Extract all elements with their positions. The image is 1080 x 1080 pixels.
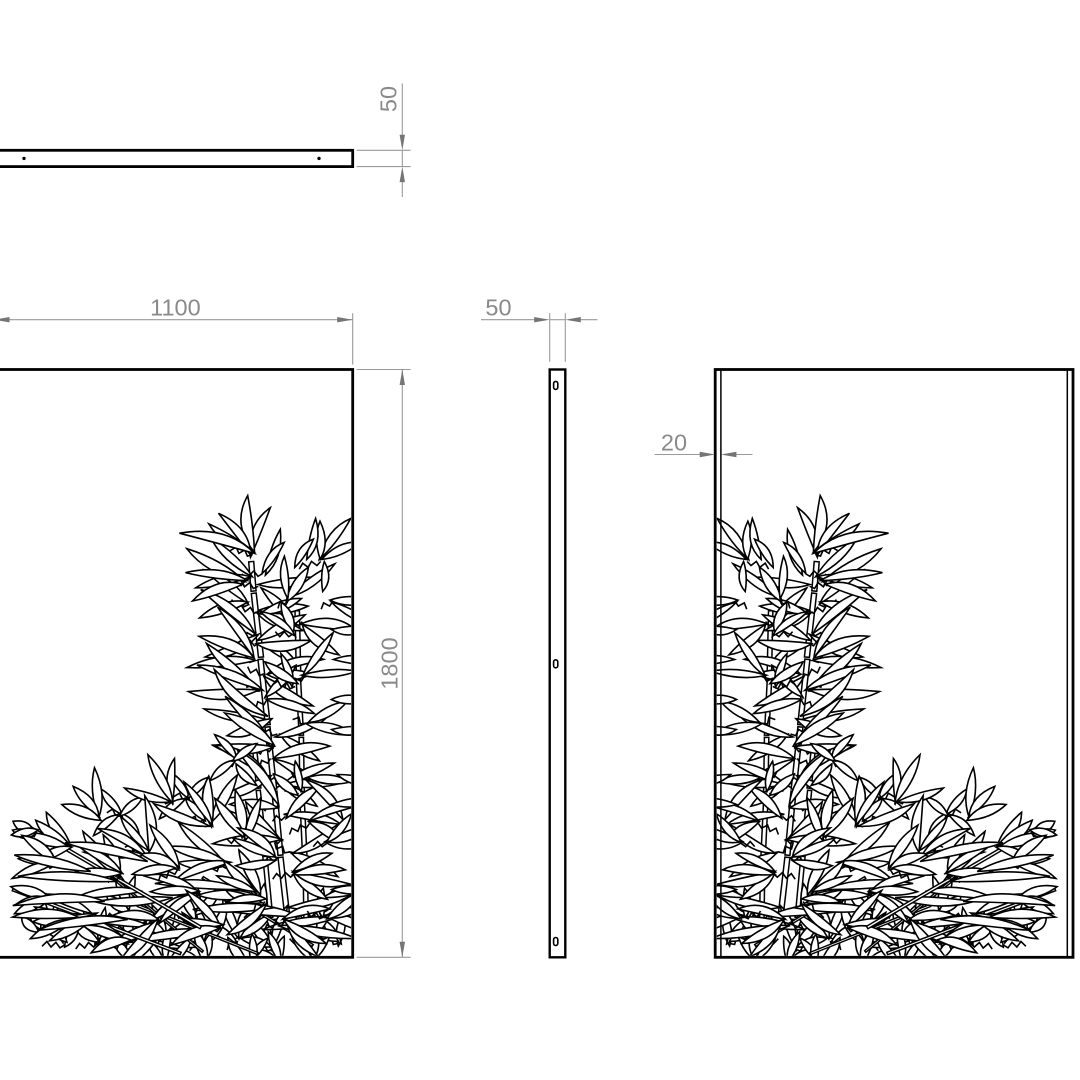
svg-text:1800: 1800 [377, 637, 403, 689]
svg-text:50: 50 [485, 294, 511, 320]
svg-text:20: 20 [661, 430, 687, 456]
svg-text:50: 50 [376, 86, 402, 112]
svg-text:1100: 1100 [150, 294, 201, 320]
